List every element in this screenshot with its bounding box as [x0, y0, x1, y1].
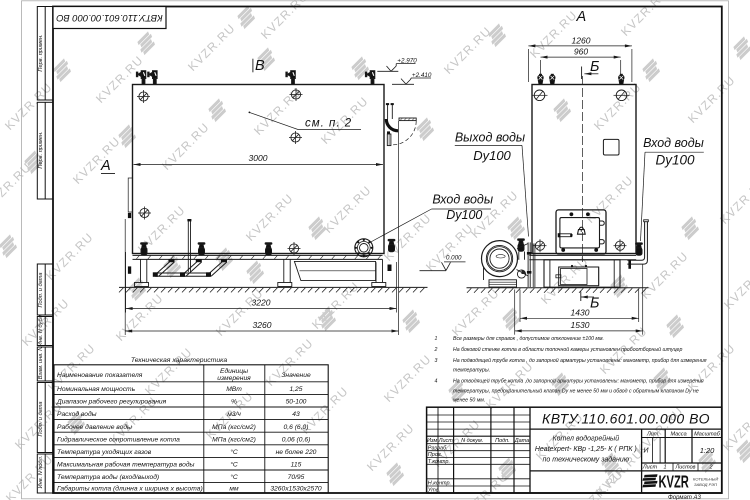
svg-text:не более 220: не более 220 [276, 448, 317, 456]
svg-text:Листов: Листов [674, 465, 695, 471]
svg-text:измерения: измерения [217, 375, 251, 382]
svg-text:Вход воды: Вход воды [643, 136, 704, 150]
svg-text:Heatexpert- КВр -1,25- К ( РПК: Heatexpert- КВр -1,25- К ( РПК ) [535, 446, 637, 453]
svg-text:МВт: МВт [226, 386, 242, 393]
svg-text:На подводящей трубе котла ,: На подводящей трубе котла , до запорной … [453, 357, 707, 364]
svg-text:KVZR: KVZR [659, 472, 690, 492]
svg-text:3260х1530х2570: 3260х1530х2570 [270, 486, 322, 493]
svg-text:Котел водогрейный: Котел водогрейный [553, 434, 620, 442]
svg-text:Dy100: Dy100 [655, 153, 695, 168]
svg-text:43: 43 [292, 411, 300, 418]
svg-text:температуры, предохранительный: температуры, предохранительный клапан Dу… [453, 387, 699, 394]
svg-text:%: % [231, 399, 237, 406]
svg-text:Выход воды: Выход воды [455, 131, 525, 145]
svg-text:1430: 1430 [571, 307, 590, 317]
svg-text:по техническому заданию: по техническому заданию [543, 455, 630, 463]
svg-text:Изм: Изм [427, 438, 437, 444]
svg-text:Все размеры для справок , допу: Все размеры для справок , допустимое отк… [453, 336, 604, 342]
svg-text:КОТЕЛЬНЫЙ: КОТЕЛЬНЫЙ [693, 477, 718, 482]
svg-text:Техническая характеристика: Техническая характеристика [131, 357, 227, 364]
svg-text:Разраб.: Разраб. [428, 445, 448, 451]
svg-text:1530: 1530 [571, 320, 590, 330]
svg-text:1,25: 1,25 [289, 386, 302, 393]
svg-text:1:20: 1:20 [700, 446, 715, 455]
svg-text:3260: 3260 [253, 320, 272, 330]
svg-text:1: 1 [435, 336, 438, 342]
svg-text:КВТУ.110.601.00.000 ВО: КВТУ.110.601.00.000 ВО [542, 411, 710, 427]
svg-text:°С: °С [230, 448, 238, 456]
svg-text:мм: мм [229, 486, 239, 493]
svg-text:0,6 (6,0): 0,6 (6,0) [284, 424, 309, 431]
svg-text:2: 2 [434, 347, 438, 353]
svg-text:Рабочее давление воды: Рабочее давление воды [57, 423, 132, 431]
svg-text:А: А [100, 158, 111, 174]
svg-text:Масштаб: Масштаб [694, 432, 721, 438]
svg-text:менее 50 мм.: менее 50 мм. [453, 398, 485, 404]
svg-text:Наименование показателя: Наименование показателя [57, 372, 143, 379]
svg-text:0.000: 0.000 [446, 255, 462, 262]
svg-text:°С: °С [230, 461, 238, 469]
svg-text:температуры.: температуры. [453, 368, 490, 374]
svg-text:960: 960 [574, 47, 588, 57]
svg-text:Инв. N дубл.: Инв. N дубл. [38, 314, 44, 346]
svg-text:Т.контр.: Т.контр. [428, 459, 450, 465]
svg-text:Пров.: Пров. [428, 452, 443, 458]
svg-text:4: 4 [435, 379, 438, 385]
svg-text:70/95: 70/95 [288, 474, 305, 481]
svg-text:Диапазон рабочего регулировани: Диапазон рабочего регулирования [56, 398, 167, 406]
svg-text:ЗАВОД РЭП: ЗАВОД РЭП [694, 482, 717, 487]
svg-text:Максимальная рабочая температу: Максимальная рабочая температура воды [57, 461, 195, 469]
svg-text:Перв. примен.: Перв. примен. [38, 131, 44, 168]
svg-text:N докум.: N докум. [461, 438, 483, 444]
svg-text:см. п. 2: см. п. 2 [305, 118, 352, 130]
svg-text:Единицы: Единицы [220, 367, 248, 375]
svg-text:Инв. N подл.: Инв. N подл. [38, 456, 44, 489]
svg-text:Перв. примен.: Перв. примен. [38, 34, 44, 71]
svg-text:КВТУ.110.601.00.000 ВО: КВТУ.110.601.00.000 ВО [56, 12, 163, 23]
svg-text:МПа (кгс/см2): МПа (кгс/см2) [212, 436, 256, 443]
svg-text:А: А [576, 9, 587, 25]
svg-text:Взам. инв. N: Взам. инв. N [38, 346, 44, 380]
svg-text:Температура уходящих газов: Температура уходящих газов [57, 448, 152, 456]
svg-text:3000: 3000 [249, 153, 268, 163]
svg-text:50-100: 50-100 [286, 399, 307, 406]
svg-text:Масса: Масса [670, 432, 686, 438]
svg-text:Формат А3: Формат А3 [668, 495, 701, 500]
svg-text:Гидравлическое сопротивление к: Гидравлическое сопротивление котла [57, 435, 180, 443]
svg-text:Dy100: Dy100 [473, 148, 511, 163]
svg-text:Н.контр.: Н.контр. [428, 481, 451, 487]
svg-text:Габариты котла (длинна х ширин: Габариты котла (длинна х ширина х высота… [57, 485, 203, 493]
svg-text:На отводящей трубе котла ,до з: На отводящей трубе котла ,до запорной ар… [453, 378, 704, 385]
svg-text:Дата: Дата [514, 438, 530, 444]
svg-text:Лит.: Лит. [646, 432, 660, 438]
svg-text:Утв.: Утв. [427, 488, 441, 494]
svg-text:Подп.: Подп. [495, 438, 510, 444]
svg-text:На боковой стенке котла в обла: На боковой стенке котла в области топочн… [453, 346, 682, 353]
svg-text:Dy100: Dy100 [446, 208, 482, 222]
svg-text:Лист: Лист [642, 465, 658, 471]
svg-text:Вход воды: Вход воды [432, 192, 493, 206]
svg-text:3220: 3220 [252, 298, 271, 308]
svg-text:115: 115 [291, 462, 302, 469]
svg-text:Значение: Значение [281, 372, 311, 379]
svg-text:2: 2 [708, 465, 712, 471]
svg-text:Расход воды: Расход воды [57, 410, 97, 418]
svg-text:Б: Б [590, 296, 599, 312]
svg-text:Подп. и дата: Подп. и дата [38, 272, 44, 307]
svg-text:°С: °С [230, 473, 238, 481]
svg-text:0,06 (0,6): 0,06 (0,6) [282, 436, 311, 443]
svg-text:1260: 1260 [572, 35, 591, 45]
svg-text:Подп. и дата: Подп. и дата [38, 401, 44, 436]
svg-text:м3/ч: м3/ч [227, 411, 241, 418]
svg-text:1: 1 [663, 465, 666, 471]
svg-text:Номинальная мощность: Номинальная мощность [57, 386, 136, 393]
svg-text:В: В [255, 58, 265, 74]
svg-text:Температура воды (вход/выход): Температура воды (вход/выход) [57, 473, 159, 481]
svg-text:МПа (кгс/см2): МПа (кгс/см2) [212, 424, 256, 431]
svg-text:3: 3 [435, 358, 438, 364]
svg-text:Лист: Лист [438, 438, 454, 444]
svg-text:Б: Б [590, 59, 599, 75]
